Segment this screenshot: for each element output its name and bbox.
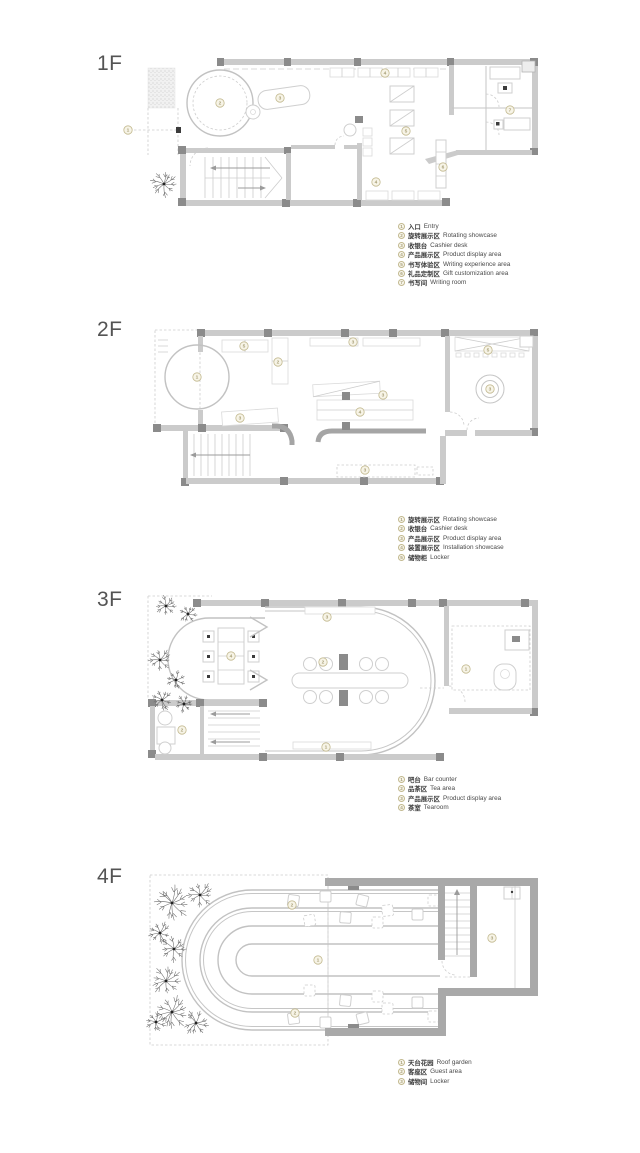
legend-label-zh: 收银台 — [408, 524, 427, 533]
svg-text:5: 5 — [405, 129, 408, 135]
legend-label-zh: 客座区 — [408, 1067, 427, 1076]
legend-1f: 1入口Entry2旋转展示区Rotating showcase3收银台Cashi… — [398, 223, 510, 286]
legend-label-zh: 书写间 — [408, 278, 427, 287]
legend-marker-number: 2 — [398, 1068, 405, 1075]
legend-marker-number: 6 — [398, 270, 405, 277]
svg-text:3: 3 — [352, 340, 355, 346]
legend-item: 5书写体验区Writing experience area — [398, 261, 510, 268]
legend-marker-number: 2 — [398, 232, 405, 239]
floor-label-1f: 1F — [97, 52, 123, 76]
svg-text:2: 2 — [291, 903, 294, 909]
legend-item: 7书写间Writing room — [398, 279, 510, 286]
svg-text:5: 5 — [243, 344, 246, 350]
legend-label-en: Entry — [424, 223, 439, 230]
legend-label-en: Rotating showcase — [443, 516, 497, 523]
legend-label-zh: 产品展示区 — [408, 250, 440, 259]
legend-marker-number: 1 — [398, 1059, 405, 1066]
legend-label-en: Installation showcase — [443, 544, 504, 551]
svg-text:5: 5 — [487, 348, 490, 354]
legend-item: 2旋转展示区Rotating showcase — [398, 232, 510, 239]
floor-label-3f: 3F — [97, 588, 123, 612]
legend-marker-number: 1 — [398, 223, 405, 230]
svg-text:7: 7 — [509, 108, 512, 114]
legend-item: 5储物柜Locker — [398, 554, 504, 561]
legend-item: 4产品展示区Product display area — [398, 251, 510, 258]
legend-label-zh: 储物柜 — [408, 553, 427, 562]
legend-marker-number: 1 — [398, 516, 405, 523]
legend-3f: 1吧台Bar counter2品茶区Tea area3产品展示区Product … — [398, 776, 501, 811]
legend-label-zh: 产品展示区 — [408, 794, 440, 803]
legend-label-zh: 储物间 — [408, 1077, 427, 1086]
legend-label-zh: 入口 — [408, 222, 421, 231]
legend-2f: 1旋转展示区Rotating showcase2收银台Cashier desk3… — [398, 516, 504, 561]
legend-label-zh: 装置展示区 — [408, 543, 440, 552]
legend-label-en: Locker — [430, 1078, 449, 1085]
legend-label-zh: 天台花园 — [408, 1058, 434, 1067]
legend-marker-number: 3 — [398, 535, 405, 542]
legend-label-zh: 礼品定制区 — [408, 269, 440, 278]
legend-label-en: Roof garden — [437, 1059, 472, 1066]
svg-text:4: 4 — [359, 410, 362, 416]
svg-text:4: 4 — [230, 654, 233, 660]
legend-label-en: Locker — [430, 554, 449, 561]
svg-text:1: 1 — [465, 667, 468, 673]
floor-plan-4f: 2123 — [120, 865, 540, 1050]
legend-label-en: Cashier desk — [430, 525, 467, 532]
svg-text:2: 2 — [294, 1011, 297, 1017]
svg-text:3: 3 — [489, 387, 492, 393]
svg-text:3: 3 — [382, 393, 385, 399]
legend-item: 1旋转展示区Rotating showcase — [398, 516, 504, 523]
legend-label-en: Rotating showcase — [443, 232, 497, 239]
floor-plan-3f: 432211 — [120, 590, 540, 770]
floor-plan-2f: 1523343353 — [120, 320, 540, 500]
legend-label-en: Gift customization area — [443, 270, 508, 277]
legend-4f: 1天台花园Roof garden2客座区Guest area3储物间Locker — [398, 1059, 472, 1085]
svg-text:2: 2 — [277, 360, 280, 366]
svg-text:1: 1 — [325, 745, 328, 751]
legend-item: 1天台花园Roof garden — [398, 1059, 472, 1066]
svg-text:1: 1 — [127, 128, 130, 134]
svg-text:3: 3 — [364, 468, 367, 474]
svg-text:1: 1 — [317, 958, 320, 964]
svg-text:3: 3 — [239, 416, 242, 422]
legend-marker-number: 5 — [398, 554, 405, 561]
legend-item: 2收银台Cashier desk — [398, 525, 504, 532]
svg-text:2: 2 — [219, 101, 222, 107]
plan-markers-4f: 2123 — [288, 901, 496, 1017]
floor-plan-1f: 12345647 — [120, 50, 540, 215]
legend-item: 4茶室Tearoom — [398, 804, 501, 811]
legend-label-zh: 旋转展示区 — [408, 231, 440, 240]
gravel-texture — [148, 68, 175, 108]
legend-marker-number: 4 — [398, 804, 405, 811]
svg-text:2: 2 — [322, 660, 325, 666]
legend-marker-number: 4 — [398, 251, 405, 258]
legend-item: 6礼品定制区Gift customization area — [398, 270, 510, 277]
legend-marker-number: 3 — [398, 795, 405, 802]
svg-text:4: 4 — [384, 71, 387, 77]
legend-label-en: Guest area — [430, 1068, 462, 1075]
legend-label-zh: 收银台 — [408, 241, 427, 250]
plant — [150, 172, 176, 198]
legend-marker-number: 3 — [398, 1078, 405, 1085]
legend-label-en: Bar counter — [424, 776, 457, 783]
svg-text:3: 3 — [491, 936, 494, 942]
legend-item: 3产品展示区Product display area — [398, 795, 501, 802]
legend-label-zh: 产品展示区 — [408, 534, 440, 543]
legend-marker-number: 7 — [398, 279, 405, 286]
legend-label-en: Product display area — [443, 535, 501, 542]
floor-label-4f: 4F — [97, 865, 123, 889]
legend-label-en: Product display area — [443, 795, 501, 802]
legend-item: 1入口Entry — [398, 223, 510, 230]
legend-label-zh: 书写体验区 — [408, 260, 440, 269]
legend-label-zh: 吧台 — [408, 775, 421, 784]
svg-text:3: 3 — [326, 615, 329, 621]
legend-label-zh: 茶室 — [408, 803, 421, 812]
legend-item: 1吧台Bar counter — [398, 776, 501, 783]
legend-marker-number: 3 — [398, 242, 405, 249]
legend-label-zh: 品茶区 — [408, 784, 427, 793]
legend-label-en: Tearoom — [424, 804, 449, 811]
svg-text:6: 6 — [442, 165, 445, 171]
legend-label-en: Cashier desk — [430, 242, 467, 249]
plan-sheet: 1F — [0, 0, 640, 1153]
legend-item: 3收银台Cashier desk — [398, 242, 510, 249]
legend-item: 2品茶区Tea area — [398, 785, 501, 792]
legend-label-en: Writing experience area — [443, 261, 510, 268]
svg-text:2: 2 — [181, 728, 184, 734]
legend-marker-number: 2 — [398, 525, 405, 532]
legend-label-en: Writing room — [430, 279, 466, 286]
legend-item: 2客座区Guest area — [398, 1068, 472, 1075]
svg-text:3: 3 — [279, 96, 282, 102]
legend-label-en: Tea area — [430, 785, 455, 792]
palm-trees — [146, 883, 211, 1033]
legend-marker-number: 4 — [398, 544, 405, 551]
svg-text:4: 4 — [375, 180, 378, 186]
legend-marker-number: 2 — [398, 785, 405, 792]
floor-label-2f: 2F — [97, 318, 123, 342]
svg-text:1: 1 — [196, 375, 199, 381]
legend-marker-number: 1 — [398, 776, 405, 783]
legend-label-zh: 旋转展示区 — [408, 515, 440, 524]
legend-item: 4装置展示区Installation showcase — [398, 544, 504, 551]
legend-item: 3产品展示区Product display area — [398, 535, 504, 542]
legend-marker-number: 5 — [398, 261, 405, 268]
legend-item: 3储物间Locker — [398, 1078, 472, 1085]
legend-label-en: Product display area — [443, 251, 501, 258]
